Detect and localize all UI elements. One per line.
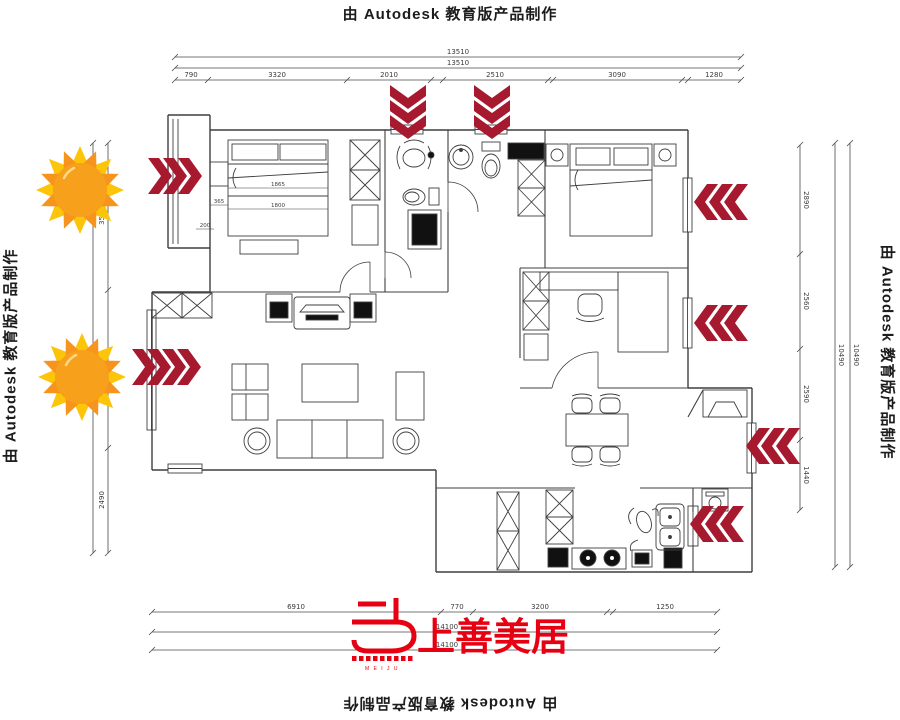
side-table-right xyxy=(393,428,419,454)
speaker-right xyxy=(350,294,376,322)
study-furniture xyxy=(523,272,668,360)
dim-bottom-seg: 3200 xyxy=(531,603,549,611)
watermark-left: 由 Autodesk 教育版产品制作 xyxy=(0,249,21,464)
master-bedroom-labels: 1865 1800 365 200 xyxy=(200,182,286,229)
kitchen-fixtures xyxy=(497,490,684,570)
doors xyxy=(340,182,598,388)
nightstand-master xyxy=(210,162,228,186)
dim-right-seg: 2890 xyxy=(802,191,810,209)
bathroom2-fixtures xyxy=(449,142,545,216)
dim-right-seg: 2590 xyxy=(802,385,810,403)
floor-plan-svg: 13510 13510 790 3320 2010 2510 3090 1280… xyxy=(0,0,900,720)
walls xyxy=(152,115,752,572)
person-figure xyxy=(629,508,659,551)
dim-top-overall-a: 13510 xyxy=(447,48,469,56)
coffee-table xyxy=(302,364,358,402)
side-cabinet xyxy=(396,372,424,420)
dining-furniture xyxy=(566,390,747,466)
dim-right-overall-a: 10490 xyxy=(837,344,845,366)
sunlight-arrow-right-dining xyxy=(746,428,800,464)
door-bath1 xyxy=(385,252,411,278)
dim-right-seg: 1440 xyxy=(802,466,810,484)
logo-text: 上善美居 xyxy=(417,617,569,659)
sink-bath1 xyxy=(397,140,434,169)
dim-left-seg: 2490 xyxy=(98,491,106,509)
dining-chair xyxy=(600,447,620,466)
master-bedroom-furniture xyxy=(196,140,380,254)
dim-top-seg: 3320 xyxy=(268,71,286,79)
dim-top-seg: 3090 xyxy=(608,71,626,79)
corner-cabinet xyxy=(703,390,747,417)
armchair-2 xyxy=(232,394,268,420)
bedroom2-furniture xyxy=(546,144,676,236)
dimension-labels: 13510 13510 790 3320 2010 2510 3090 1280… xyxy=(98,48,860,649)
sunlight-arrow-right-bedroom2 xyxy=(694,184,748,220)
bed-bedroom2 xyxy=(570,144,652,236)
wardrobe-master xyxy=(350,140,380,245)
bed-width-label: 1865 xyxy=(271,182,285,188)
dim-bottom-seg: 1250 xyxy=(656,603,674,611)
shelf-bath2 xyxy=(508,143,544,159)
outer-walls xyxy=(152,115,752,572)
sunlight-arrow-left-upper xyxy=(148,158,202,194)
dim-bottom-seg: 6910 xyxy=(287,603,305,611)
sunlight-arrow-left-lower xyxy=(132,349,201,385)
sunlight-arrow-right-study xyxy=(694,305,748,341)
window-bedroom2 xyxy=(683,178,692,232)
counter-unit-2 xyxy=(664,548,682,568)
desk-study xyxy=(540,272,668,352)
dining-chair xyxy=(572,447,592,466)
toilet-bath1 xyxy=(403,188,439,205)
offset-label-a: 365 xyxy=(214,199,225,205)
fridge-cabinet-column xyxy=(497,492,519,570)
sunlight-arrow-top-left xyxy=(390,85,426,139)
dining-chair xyxy=(572,394,592,413)
logo-letters: M E I J U xyxy=(365,666,399,672)
bed-dim-lines xyxy=(196,188,328,229)
stove xyxy=(572,548,626,569)
logo-mark-dots xyxy=(352,656,413,661)
door-study xyxy=(552,352,598,388)
dining-chair xyxy=(600,394,620,413)
dim-top-seg: 2510 xyxy=(486,71,504,79)
armchair-1 xyxy=(232,364,268,390)
nightstand-right xyxy=(654,144,676,166)
dim-top-seg: 790 xyxy=(184,71,197,79)
kitchen-sink xyxy=(656,504,684,550)
dim-top-seg: 1280 xyxy=(705,71,723,79)
sun-icon xyxy=(38,333,126,421)
dim-right-seg: 2560 xyxy=(802,292,810,310)
bathroom1-fixtures xyxy=(397,140,441,249)
small-appliance xyxy=(632,550,652,567)
watermark-top: 由 Autodesk 教育版产品制作 xyxy=(343,3,558,24)
window-study xyxy=(683,298,692,348)
tv-console xyxy=(294,297,350,329)
door-bath2 xyxy=(448,182,478,212)
watermark-bottom: 由 Autodesk 教育版产品制作 xyxy=(343,694,558,715)
counter-unit xyxy=(548,548,568,567)
sun-icon xyxy=(36,146,124,234)
sofa xyxy=(277,420,383,458)
door-master xyxy=(340,262,370,292)
dim-top-seg: 2010 xyxy=(380,71,398,79)
desk-chair xyxy=(576,294,604,322)
window-living-bottom xyxy=(168,464,202,473)
entry-shoe-cabinet xyxy=(152,293,212,318)
sink-bath2 xyxy=(449,145,473,169)
toilet-bath2 xyxy=(482,142,500,178)
watermark-right: 由 Autodesk 教育版产品制作 xyxy=(878,245,899,460)
dining-table xyxy=(566,414,628,446)
logo-mark-icon xyxy=(352,598,414,651)
tall-cabinet xyxy=(546,490,573,544)
dimension-lines xyxy=(90,54,853,653)
bed-bench xyxy=(240,240,298,254)
speaker-left xyxy=(266,294,292,322)
dim-bottom-seg: 770 xyxy=(450,603,463,611)
wardrobe-study xyxy=(523,272,549,360)
shower-bath1 xyxy=(408,210,441,249)
closet-bath2 xyxy=(518,160,545,216)
bed-length-label: 1800 xyxy=(271,203,285,209)
floorplan-canvas: 13510 13510 790 3320 2010 2510 3090 1280… xyxy=(0,0,900,720)
sunlight-arrow-top-right xyxy=(474,85,510,139)
windows xyxy=(147,119,756,546)
side-table-left xyxy=(244,428,270,454)
offset-label-b: 200 xyxy=(200,223,211,229)
dim-right-overall-b: 10490 xyxy=(852,344,860,366)
nightstand-left xyxy=(546,144,568,166)
dim-top-overall-b: 13510 xyxy=(447,59,469,67)
